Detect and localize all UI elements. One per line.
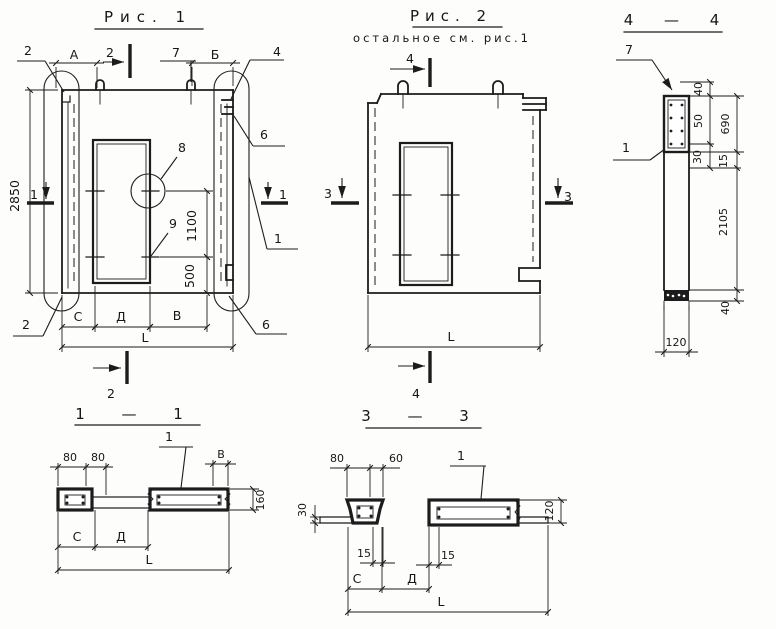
- section-marker-1-left: 1: [27, 182, 54, 203]
- dim-40-top-label: 40: [692, 82, 705, 96]
- callout-2-bottom-label: 2: [22, 317, 30, 332]
- dim-b-label: Б: [211, 47, 220, 62]
- dim-60-label-33: 60: [389, 452, 403, 465]
- dim-v-label-fig1: В: [173, 308, 182, 323]
- callout-4-label: 4: [273, 44, 281, 59]
- dim-40-bottom-label: 40: [719, 301, 732, 315]
- callout-6-top-label: 6: [260, 127, 268, 142]
- section-marker-3-left: 3: [324, 178, 359, 203]
- figure-1: Рис. 1: [7, 8, 298, 401]
- callout-1-sec44-label: 1: [622, 140, 630, 155]
- dim-c-label-fig1: С: [74, 309, 83, 324]
- callout-6-bottom: 6: [229, 296, 287, 334]
- callout-1-sec33-label: 1: [457, 448, 465, 463]
- section-marker-1-right: 1: [261, 182, 288, 203]
- dim-d-label-33: Д: [407, 571, 417, 586]
- figure-2-title: Рис. 2: [410, 7, 492, 25]
- callout-9: 9: [151, 216, 177, 256]
- callout-7-sec44: 7: [616, 42, 672, 90]
- section-marker-2-bottom: 2: [93, 351, 127, 401]
- section-marker-4-bottom: 4: [398, 351, 430, 401]
- dim-15a-33: 15: [357, 527, 395, 567]
- dims-bottom-33: С Д L: [348, 525, 548, 616]
- marker-3-left-label: 3: [324, 186, 332, 201]
- dim-2105-label: 2105: [717, 208, 730, 236]
- dim-30-33: 30: [296, 503, 320, 533]
- callout-2-bottom-left: 2: [13, 297, 62, 336]
- dim-l-label-fig1: L: [142, 330, 149, 345]
- dim-d-label-fig1: Д: [116, 309, 126, 324]
- opening-fig1: [86, 140, 159, 283]
- dim-15b-33: 15: [416, 527, 455, 593]
- callout-6-bottom-label: 6: [262, 317, 270, 332]
- dim-15-label: 15: [717, 154, 730, 168]
- panel-section-right-11: [148, 489, 230, 510]
- callout-1-sec44: 1: [613, 140, 669, 160]
- drawing-sheet: Рис. 1: [0, 0, 776, 629]
- dim-15b-label: 15: [441, 549, 455, 562]
- figure-2: Рис. 2 остальное см. рис.1: [324, 7, 573, 401]
- callout-2-top-left: 2: [17, 43, 64, 92]
- dim-c-label-11: С: [73, 529, 82, 544]
- dim-v-label-11: В: [217, 448, 225, 461]
- callout-7-label: 7: [172, 45, 180, 60]
- marker-1-right-label: 1: [279, 187, 287, 202]
- section-4-4: 4 — 4 7 1: [613, 11, 744, 357]
- dim-80-label-33: 80: [330, 452, 344, 465]
- section-3-3: 3 — 3 30: [296, 407, 567, 616]
- section-marker-4-top: 4: [390, 51, 430, 87]
- dim-500: 500: [182, 257, 207, 293]
- marker-1-left-label: 1: [30, 187, 38, 202]
- dim-30-label-33: 30: [296, 503, 309, 517]
- callout-8: 8: [161, 140, 186, 179]
- section-3-3-title: 3 — 3: [361, 407, 485, 425]
- dim-120-label: 120: [666, 336, 687, 349]
- dim-120-33: 120: [518, 500, 567, 523]
- dim-b: Б: [186, 47, 240, 86]
- callout-1-sec11-label: 1: [165, 429, 173, 444]
- dim-d-label-11: Д: [116, 529, 126, 544]
- dim-160-label: 160: [254, 490, 267, 511]
- dim-c-label-33: С: [353, 571, 362, 586]
- dim-120-label-33: 120: [543, 501, 556, 522]
- marker-2-bottom-label: 2: [107, 386, 115, 401]
- dim-v-11: В: [205, 448, 236, 486]
- callout-7: 7: [160, 45, 196, 82]
- dim-l-label-33: L: [438, 594, 445, 609]
- dim-80b-label: 80: [91, 451, 105, 464]
- dim-1100-label: 1100: [184, 210, 199, 242]
- callout-9-label: 9: [169, 216, 177, 231]
- marker-2-top-label: 2: [106, 45, 114, 60]
- callout-8-label: 8: [178, 140, 186, 155]
- slab-left-33: [320, 517, 353, 523]
- panel-section-right-33: [429, 500, 520, 525]
- dim-50-label: 50: [692, 114, 705, 128]
- callout-6-top: 6: [234, 116, 285, 146]
- section-marker-2-top: 2: [103, 44, 130, 78]
- marker-4-top-label: 4: [406, 51, 414, 66]
- dim-15a-label: 15: [357, 547, 371, 560]
- dim-160-11: 160: [230, 489, 267, 511]
- rib-section-left-33: [347, 500, 383, 523]
- dim-a-label: А: [70, 47, 79, 62]
- section-1-1: 1 — 1 80 80: [50, 405, 267, 574]
- section-1-1-title: 1 — 1: [75, 405, 199, 423]
- callout-1-side: 1: [249, 177, 298, 249]
- callout-7-sec44-label: 7: [625, 42, 633, 57]
- dim-2850-label: 2850: [7, 180, 22, 212]
- dims-top-33: 80 60: [330, 452, 403, 497]
- dim-120-sec44: 120: [655, 306, 698, 357]
- callout-1-side-label: 1: [274, 231, 282, 246]
- dim-500-label: 500: [182, 264, 197, 288]
- dim-l-fig2: L: [368, 295, 540, 352]
- dim-80a-label: 80: [63, 451, 77, 464]
- section-marker-3-right: 3: [545, 178, 573, 204]
- callout-1-sec11: 1: [159, 429, 193, 488]
- figure-1-title: Рис. 1: [104, 8, 192, 26]
- dim-30-label: 30: [691, 150, 704, 164]
- technical-drawing: Рис. 1: [0, 0, 776, 629]
- panel-outline-fig2: [368, 94, 546, 293]
- callout-1-sec33: 1: [450, 448, 486, 499]
- opening-fig2: [393, 143, 459, 285]
- callout-2-top-label: 2: [24, 43, 32, 58]
- dims-bottom-11: С Д L: [58, 510, 229, 574]
- dim-l-label-11: L: [146, 552, 153, 567]
- opening-slab-11: [92, 497, 150, 508]
- dim-1100: 1100: [160, 191, 213, 257]
- lifting-loops-fig1: [96, 80, 195, 104]
- dim-c-d-v-l-fig1: С Д В L: [62, 286, 233, 352]
- panel-section-body: [664, 96, 689, 310]
- section-4-4-title: 4 — 4: [624, 11, 733, 29]
- dim-l-label-fig2: L: [448, 329, 455, 344]
- figure-2-subtitle: остальное см. рис.1: [353, 31, 531, 45]
- rib-section-left-11: [58, 489, 92, 510]
- marker-4-bottom-label: 4: [412, 386, 420, 401]
- callout-4: 4: [231, 44, 284, 99]
- dim-690-label: 690: [719, 114, 732, 135]
